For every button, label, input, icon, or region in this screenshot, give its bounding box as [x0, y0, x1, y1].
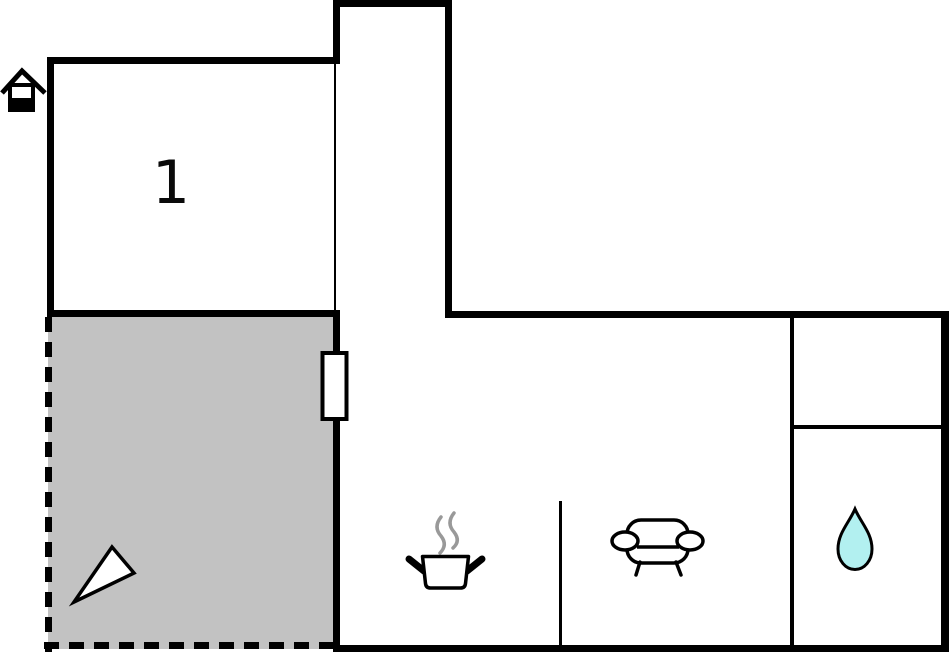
wall-bottom: [333, 645, 949, 652]
wall-right-outer: [941, 311, 949, 652]
floor-plan: 1: [0, 0, 949, 652]
terrace-area: [48, 317, 333, 649]
wall-corridor-right: [445, 0, 452, 318]
wall-bathroom-horizontal: [790, 425, 942, 429]
room-number-label: 1: [152, 148, 190, 218]
wall-bathroom-vertical: [790, 318, 794, 652]
wall-room1-corridor-divider: [334, 64, 336, 310]
wall-corridor-left-upper: [333, 0, 340, 64]
wall-kitchen-living-divider: [559, 501, 562, 652]
wall-main-horizontal: [445, 311, 949, 318]
wall-room1-top: [47, 57, 340, 64]
sofa-armrest-right: [677, 532, 703, 550]
wall-room1-bottom: [47, 310, 340, 317]
wall-terrace-right-lower: [333, 419, 340, 652]
sofa-armrest-left: [612, 532, 638, 550]
door-window-marker: [323, 353, 347, 419]
wall-corridor-top: [333, 0, 452, 7]
wall-room1-left: [47, 57, 54, 317]
pot-body: [423, 557, 469, 589]
house-base: [10, 98, 33, 110]
wall-terrace-right-upper: [333, 310, 340, 353]
